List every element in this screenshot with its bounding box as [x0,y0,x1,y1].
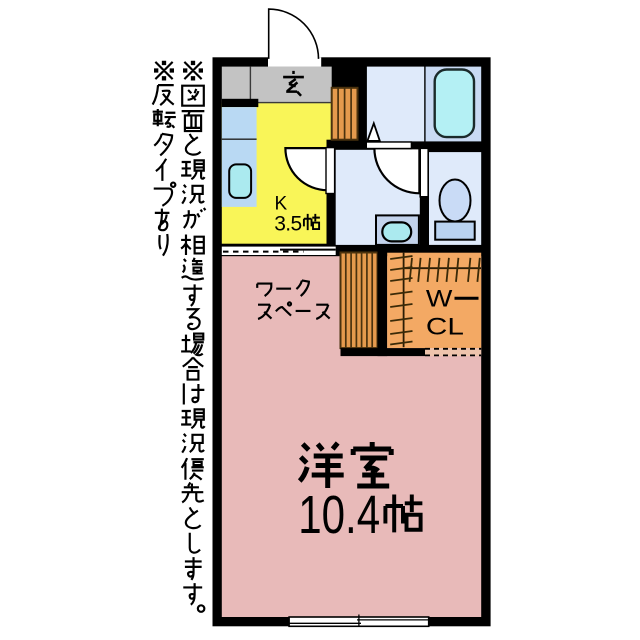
svg-text:CL: CL [426,313,464,340]
svg-text:3.5: 3.5 [274,213,302,236]
svg-text:W: W [426,286,453,313]
svg-text:K: K [275,193,288,214]
svg-text:10.4: 10.4 [298,485,380,545]
